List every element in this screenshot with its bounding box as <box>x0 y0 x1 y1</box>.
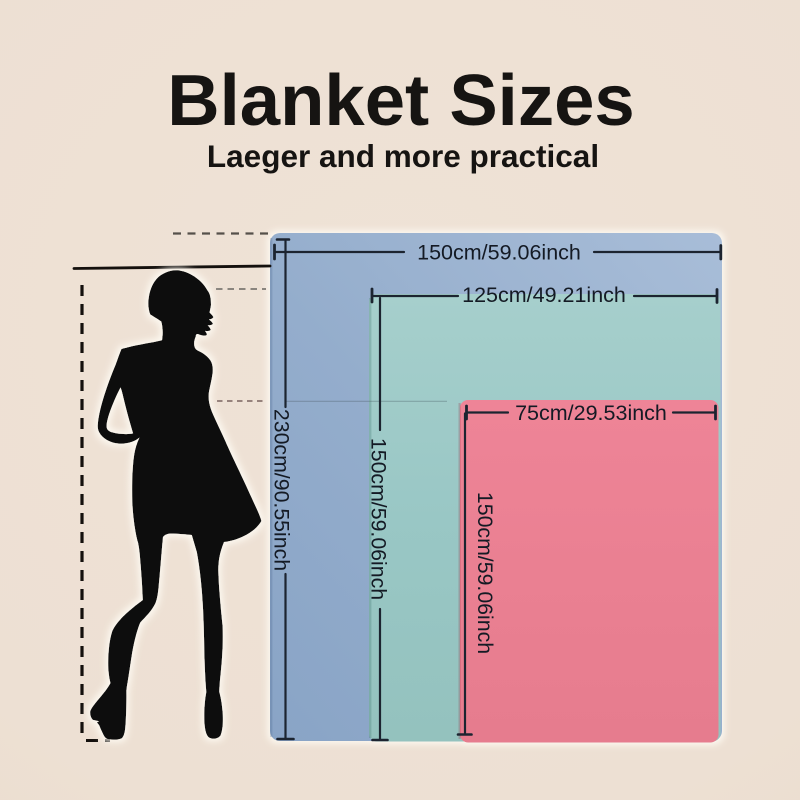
svg-text:125cm/49.21inch: 125cm/49.21inch <box>462 283 626 307</box>
svg-text:230cm/90.55inch: 230cm/90.55inch <box>270 409 294 571</box>
svg-text:150cm/59.06inch: 150cm/59.06inch <box>367 438 391 600</box>
svg-text:75cm/29.53inch: 75cm/29.53inch <box>515 401 667 425</box>
svg-text:150cm/59.06inch: 150cm/59.06inch <box>473 492 497 654</box>
svg-text:150cm/59.06inch: 150cm/59.06inch <box>417 241 581 265</box>
